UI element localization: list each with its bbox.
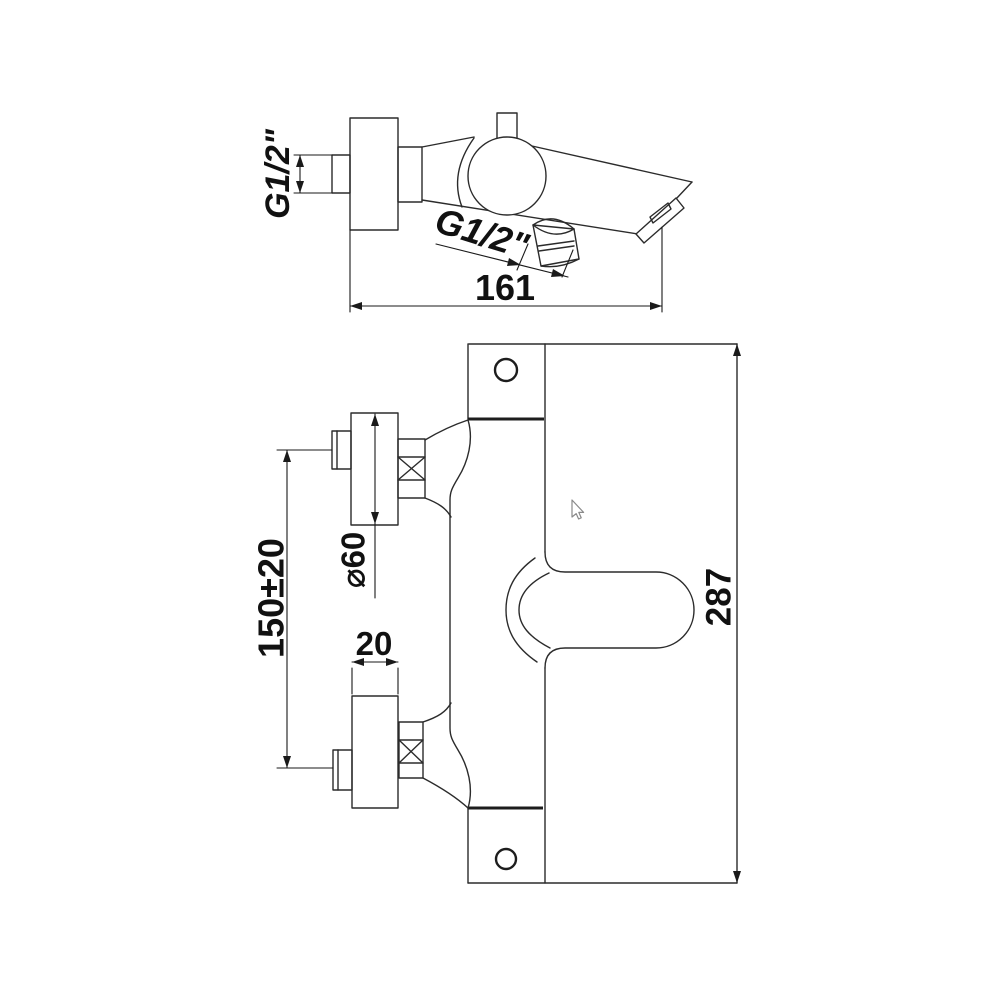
label-height-287: 287 [700,568,739,626]
dim-flange-thickness [352,658,398,694]
side-wall-flange [350,118,398,230]
side-body-connector [398,147,422,202]
label-flange-diameter: ⌀60 [335,532,372,589]
handle [506,552,694,668]
bottom-mounting-plate [468,808,543,883]
top-mounting-hole [495,359,517,381]
dim-inlet-thread [294,155,332,193]
body-neck-profile [450,420,470,808]
dim-flange-diameter [371,414,379,598]
side-inlet-stub [332,155,350,193]
label-width-161: 161 [475,267,535,308]
front-view-drawing: 287 150±20 ⌀60 20 [251,344,742,883]
valve-sphere [468,137,546,215]
spout-end-edge [676,182,692,199]
bottom-mounting-hole [496,849,516,869]
side-view-drawing: G1/2" G1/2" 161 [259,113,692,312]
spout-top-edge-left [422,137,474,147]
spout-outlet [636,198,684,243]
label-spacing-150: 150±20 [251,538,292,658]
label-inlet-thread: G1/2" [259,128,297,219]
spout-top-edge-right [532,146,692,182]
top-mounting-plate [468,344,544,419]
lower-wall-connector [333,696,468,808]
handshower-connector [533,219,579,267]
mouse-pointer-icon [572,500,584,519]
label-flange-thickness: 20 [356,625,393,662]
upper-wall-connector [332,413,468,525]
drawing-sheet: G1/2" G1/2" 161 [0,0,1000,1000]
faucet-technical-drawing: G1/2" G1/2" 161 [0,0,1000,1000]
